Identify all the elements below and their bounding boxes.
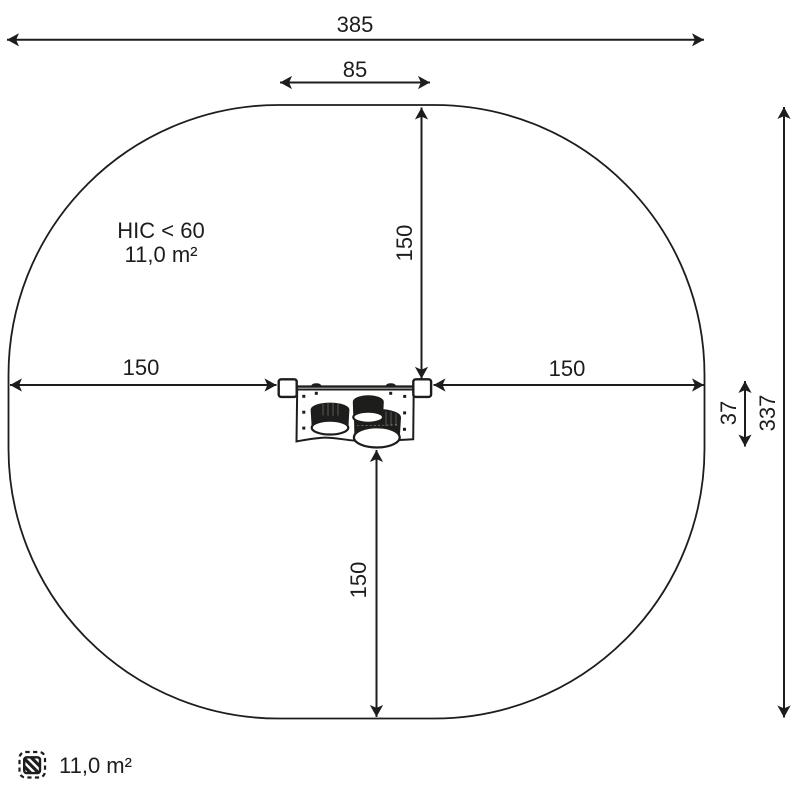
svg-text:85: 85 xyxy=(343,57,367,82)
svg-text:11,0 m²: 11,0 m² xyxy=(59,753,132,778)
svg-text:HIC < 60: HIC < 60 xyxy=(117,218,204,243)
svg-text:150: 150 xyxy=(392,225,417,262)
svg-text:37: 37 xyxy=(716,401,741,425)
svg-text:150: 150 xyxy=(346,562,371,599)
svg-text:150: 150 xyxy=(123,355,160,380)
svg-text:385: 385 xyxy=(337,12,374,37)
svg-text:150: 150 xyxy=(549,356,586,381)
svg-text:11,0 m²: 11,0 m² xyxy=(125,242,198,267)
svg-text:337: 337 xyxy=(755,395,780,432)
